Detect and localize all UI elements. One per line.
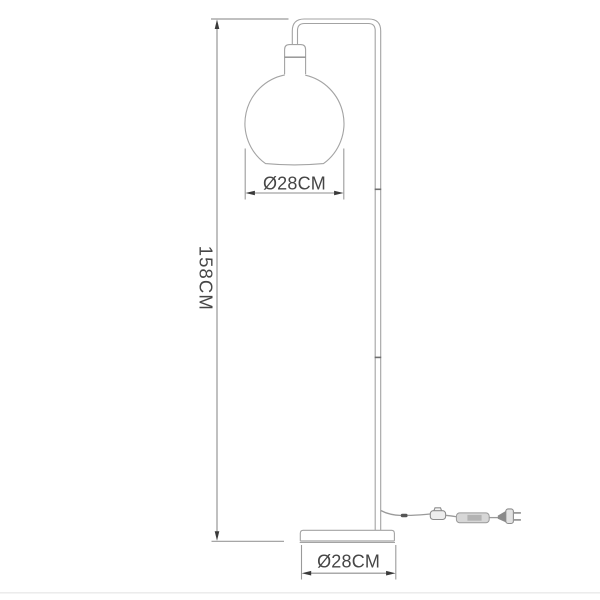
- svg-text:Ø28CM: Ø28CM: [263, 174, 326, 194]
- svg-text:158CM: 158CM: [196, 246, 217, 311]
- svg-text:Ø28CM: Ø28CM: [317, 552, 380, 572]
